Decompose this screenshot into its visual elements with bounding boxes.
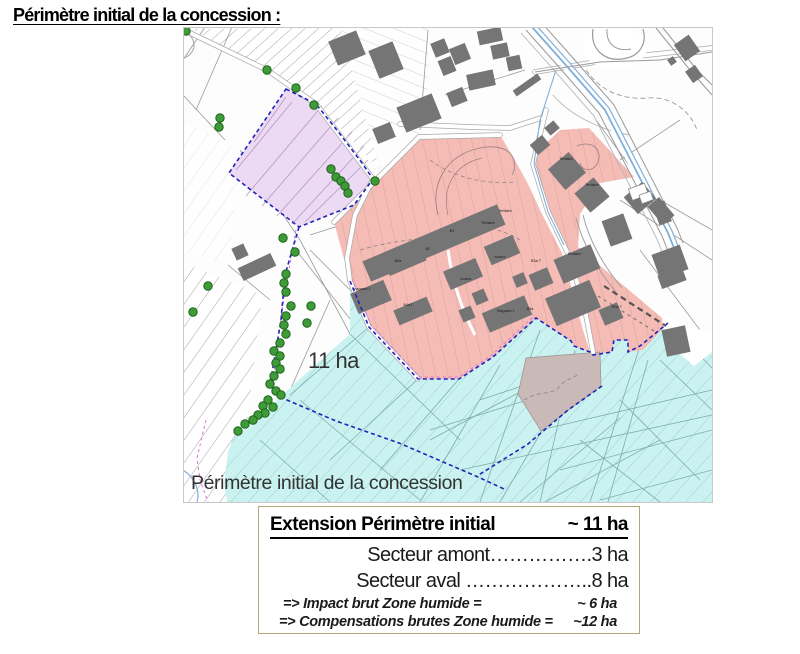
svg-text:Tertiaire: Tertiaire (585, 183, 599, 187)
svg-text:B3a: B3a (527, 307, 535, 311)
svg-text:11 ha: 11 ha (308, 348, 360, 373)
svg-text:magasin 1: magasin 1 (353, 287, 371, 291)
svg-text:B2: B2 (426, 247, 431, 251)
svg-text:B3a: B3a (395, 259, 403, 263)
svg-text:locaux: locaux (461, 277, 472, 281)
svg-text:Magasin L: Magasin L (497, 309, 515, 313)
svg-text:B4aT: B4aT (403, 303, 413, 307)
svg-text:Périmètre initial de la conces: Périmètre initial de la concession (191, 472, 462, 494)
svg-text:Tertiaire: Tertiaire (559, 157, 573, 161)
svg-text:B3a T: B3a T (612, 305, 623, 309)
svg-text:B1: B1 (450, 229, 455, 233)
svg-text:Tertiaire: Tertiaire (481, 221, 495, 225)
svg-text:locaux: locaux (495, 255, 506, 259)
svg-text:Tertiaire: Tertiaire (498, 209, 512, 213)
svg-text:Tertiaire: Tertiaire (567, 252, 581, 256)
svg-text:B3a T: B3a T (531, 259, 542, 263)
